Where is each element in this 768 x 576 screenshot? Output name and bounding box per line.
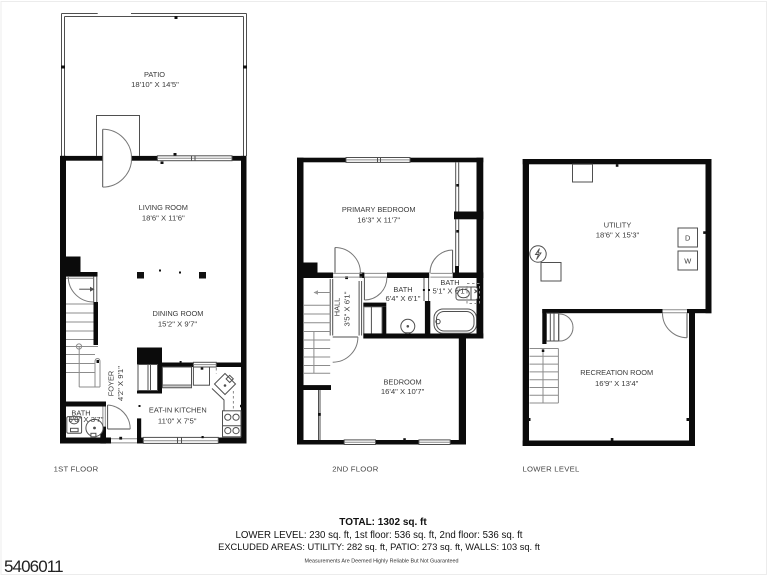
svg-text:W: W: [684, 257, 691, 266]
svg-text:PATIO: PATIO: [144, 70, 165, 79]
svg-text:TOTAL: 1302 sq. ft: TOTAL: 1302 sq. ft: [339, 517, 427, 528]
svg-text:1ST FLOOR: 1ST FLOOR: [54, 465, 99, 474]
svg-text:18'6" X 15'3": 18'6" X 15'3": [596, 231, 640, 240]
svg-text:18'6" X 11'6": 18'6" X 11'6": [142, 214, 185, 223]
svg-text:LOWER LEVEL: 230 sq. ft, 1st f: LOWER LEVEL: 230 sq. ft, 1st floor: 536 …: [235, 530, 522, 541]
svg-text:16'9" X 13'4": 16'9" X 13'4": [595, 379, 639, 388]
svg-text:Measurements Are Deemed Highly: Measurements Are Deemed Highly Reliable …: [304, 559, 458, 565]
svg-text:PRIMARY BEDROOM: PRIMARY BEDROOM: [342, 205, 416, 214]
svg-text:LIVING ROOM: LIVING ROOM: [139, 203, 188, 212]
svg-text:UTILITY: UTILITY: [604, 221, 632, 230]
svg-text:DINING ROOM: DINING ROOM: [153, 309, 204, 318]
svg-text:2ND FLOOR: 2ND FLOOR: [332, 465, 378, 474]
svg-text:5406011: 5406011: [4, 557, 63, 576]
svg-text:5'1" X 6'1": 5'1" X 6'1": [433, 287, 468, 296]
svg-text:EXCLUDED AREAS: UTILITY: 282 s: EXCLUDED AREAS: UTILITY: 282 sq. ft, PAT…: [218, 542, 540, 552]
svg-text:4'2" X 9'1": 4'2" X 9'1": [116, 366, 125, 401]
svg-text:16'3" X 11'7": 16'3" X 11'7": [357, 216, 400, 225]
svg-text:LOWER LEVEL: LOWER LEVEL: [522, 465, 579, 474]
svg-text:RECREATION ROOM: RECREATION ROOM: [580, 368, 653, 377]
svg-text:BATH: BATH: [393, 285, 412, 294]
svg-text:3'5" X 6'1": 3'5" X 6'1": [343, 291, 352, 326]
svg-text:EAT-IN KITCHEN: EAT-IN KITCHEN: [149, 406, 207, 415]
svg-text:HALL: HALL: [333, 298, 342, 317]
svg-text:16'4" X 10'7": 16'4" X 10'7": [381, 387, 425, 396]
svg-text:18'10" X 14'5": 18'10" X 14'5": [131, 80, 179, 89]
svg-text:11'0" X 7'5": 11'0" X 7'5": [158, 417, 197, 426]
svg-text:15'2" X 9'7": 15'2" X 9'7": [158, 320, 197, 329]
svg-text:D: D: [685, 234, 690, 243]
svg-text:6'4" X 6'1": 6'4" X 6'1": [386, 294, 421, 303]
svg-text:5'0" X 3'7": 5'0" X 3'7": [69, 415, 104, 424]
svg-text:FOYER: FOYER: [107, 371, 116, 396]
svg-text:BEDROOM: BEDROOM: [384, 378, 422, 387]
